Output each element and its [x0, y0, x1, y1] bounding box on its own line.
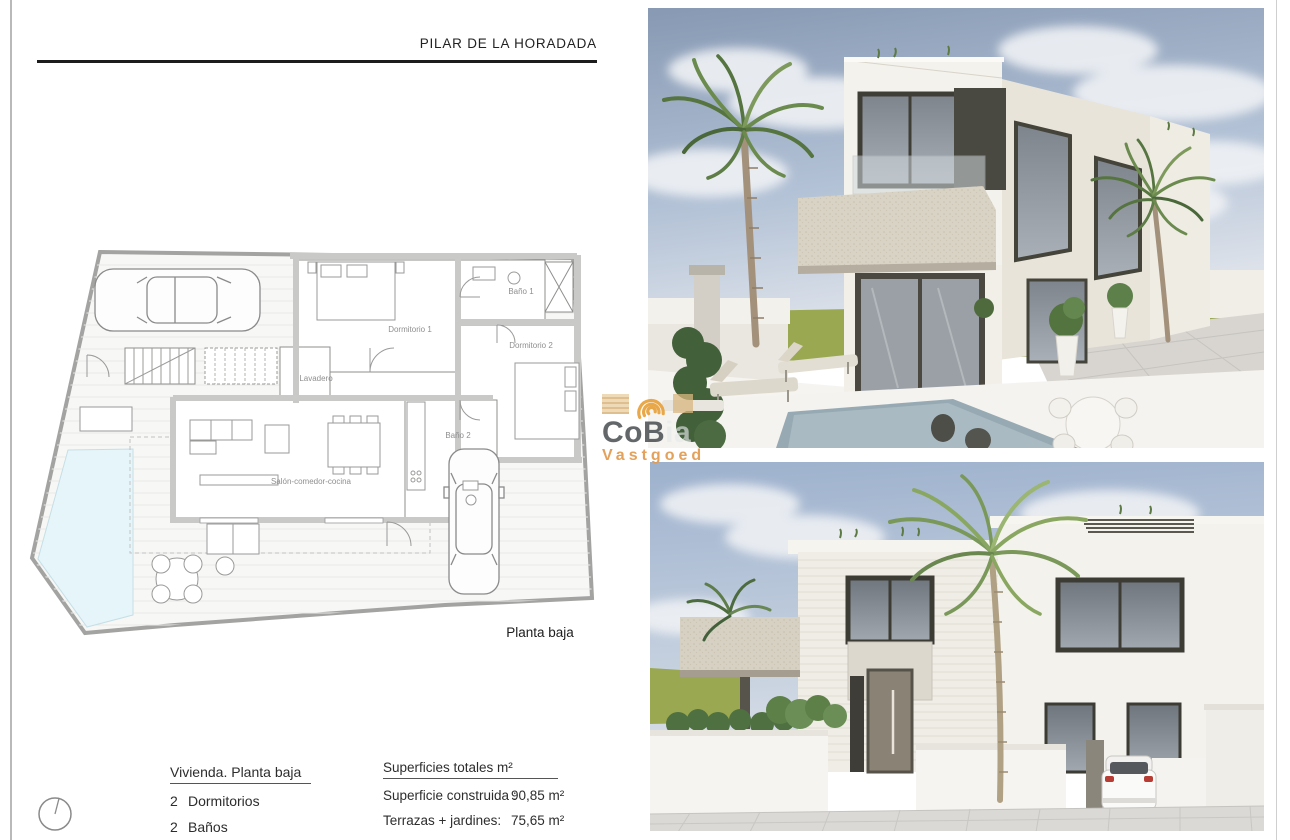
superficies-heading: Superficies totales m² [383, 760, 558, 779]
details-superficies: Superficies totales m² Superficie constr… [383, 760, 564, 829]
room-label-dormitorio-2: Dormitorio 2 [471, 341, 591, 350]
room-label-lavadero: Lavadero [286, 374, 346, 383]
page-title: PILAR DE LA HORADADA [37, 36, 597, 51]
render-exterior-corner [648, 8, 1264, 448]
vivienda-heading: Vivienda. Planta baja [170, 764, 311, 784]
floor-plan: Dormitorio 1 Baño 1 Dormitorio 2 Lavader… [25, 235, 600, 650]
room-label-bano-2: Baño 2 [428, 431, 488, 440]
car-top-view [95, 269, 260, 331]
balcony-volume [798, 186, 996, 270]
detail-row-construida: Superficie construida :90,85 m² [383, 787, 564, 804]
room-label-salon: Salón-comedor-cocina [251, 477, 371, 486]
brochure-page: PILAR DE LA HORADADA [0, 0, 1290, 840]
render-exterior-front [650, 462, 1264, 831]
watermark-logo: CoBia Vastgoed [602, 392, 742, 465]
watermark-name-light: ia [665, 416, 691, 449]
watermark-striped-square-icon [602, 394, 629, 414]
detail-item-banos: 2Baños [170, 819, 311, 836]
detail-row-terrazas: Terrazas + jardines:75,65 m² [383, 812, 564, 829]
detail-item-dormitorios: 2Dormitorios [170, 793, 311, 810]
floor-plan-drawing [25, 235, 600, 650]
watermark-square-icon [673, 394, 693, 413]
watermark-name-dark: CoB [602, 416, 665, 449]
watermark-icons [602, 392, 742, 418]
room-label-dormitorio-1: Dormitorio 1 [355, 325, 465, 334]
car [1102, 756, 1156, 814]
front-door [868, 670, 912, 772]
villa-building [788, 505, 1264, 774]
title-underline [37, 60, 597, 63]
details-vivienda: Vivienda. Planta baja 2Dormitorios 2Baño… [170, 764, 311, 836]
plan-caption: Planta baja [470, 625, 610, 640]
watermark-name: CoBia [602, 419, 742, 446]
room-label-bano-1: Baño 1 [491, 287, 551, 296]
page-left-border [10, 0, 12, 840]
car-parking-view [444, 449, 504, 594]
watermark-subtitle: Vastgoed [602, 447, 742, 465]
page-right-border [1276, 0, 1277, 840]
compass-icon [34, 793, 76, 835]
